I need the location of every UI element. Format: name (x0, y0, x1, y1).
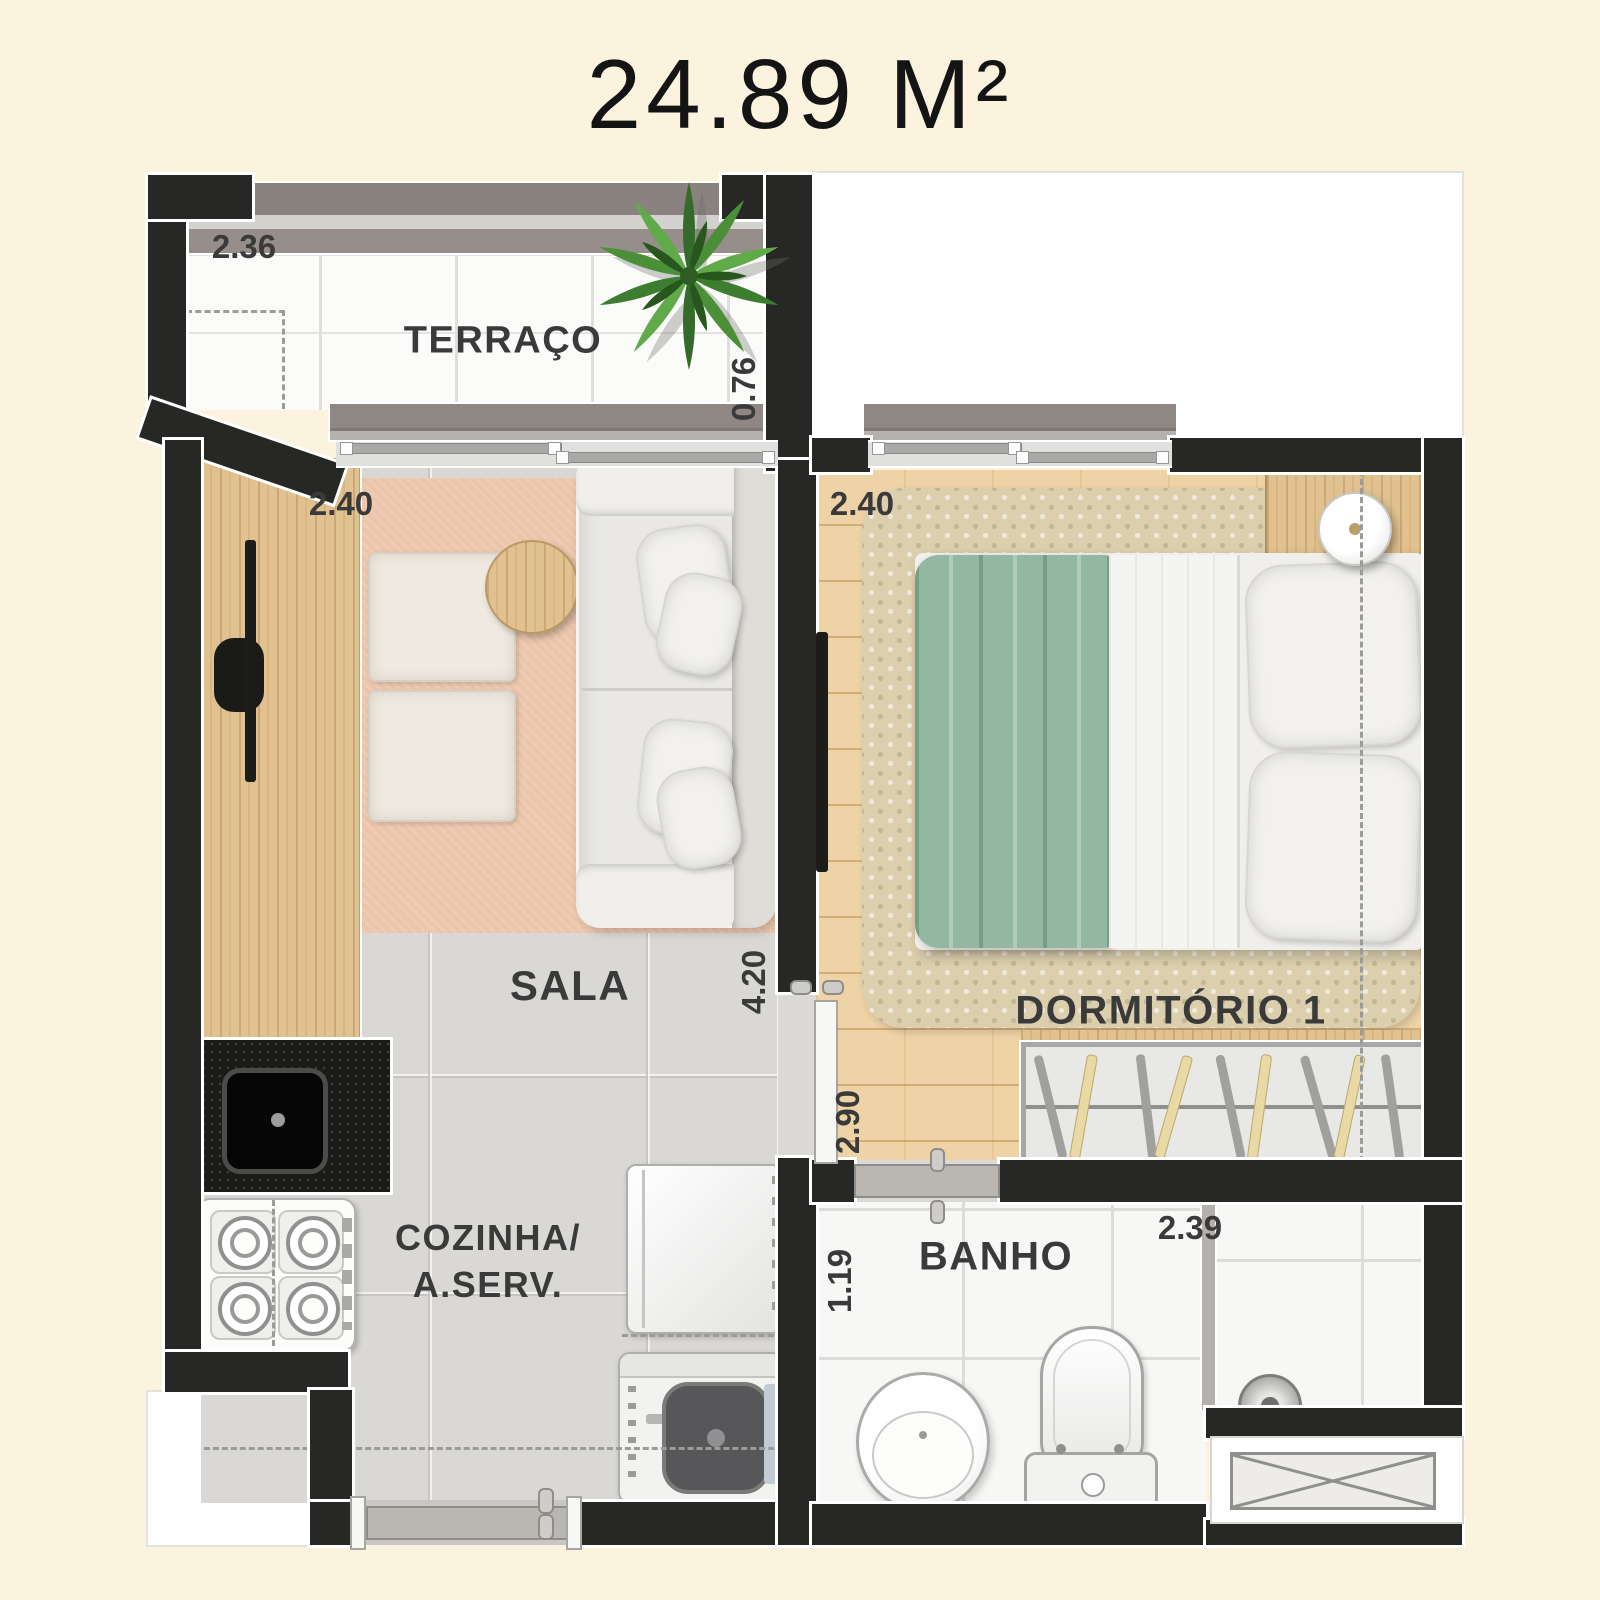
bed (915, 553, 1424, 950)
panel-handle (1156, 451, 1169, 464)
bedroom-label: DORMITÓRIO 1 (1015, 989, 1326, 1034)
kitchen-label: COZINHA/ A.SERV. (395, 1215, 581, 1309)
bathroom-depth-dimension: 1.19 (821, 1249, 859, 1313)
stove-burner (286, 1216, 340, 1270)
washer-side-accent (764, 1384, 778, 1484)
door-handle-icon (538, 1488, 554, 1514)
ledge-hatch-box (1230, 1452, 1436, 1510)
bathroom-width-dimension: 2.39 (1158, 1209, 1222, 1247)
washing-machine (618, 1352, 786, 1504)
tv-cabinet (200, 458, 360, 1044)
stove (196, 1198, 356, 1352)
sliding-panel (342, 443, 562, 454)
bedroom-projection-dashed (1360, 470, 1363, 1162)
balcony-door-sill (330, 404, 790, 440)
kitchen-label-line2: A.SERV. (395, 1262, 581, 1309)
bedroom-depth-dimension: 2.90 (829, 1090, 867, 1154)
table-lamp-icon (1318, 492, 1392, 566)
terrace-width-dimension: 2.36 (212, 228, 276, 266)
palm-plant-icon (583, 176, 795, 376)
stove-burner (218, 1216, 272, 1270)
bedroom-door-threshold (778, 992, 816, 1162)
bed-pillow (1244, 560, 1422, 750)
wall-bathroom-bottom (812, 1504, 1206, 1545)
floor-cushion-2 (368, 690, 516, 822)
floor-plan: 24.89 M² 2.36 TERRAÇO 0.76 (0, 0, 1600, 1600)
bed-pillow (1244, 750, 1422, 944)
washer-drum (662, 1382, 770, 1494)
toilet-hinge-icon (1114, 1444, 1124, 1454)
kitchen-faucet-icon (271, 1113, 285, 1127)
panel-handle (762, 451, 775, 464)
wardrobe (1021, 1042, 1438, 1172)
sofa-seat-divider (582, 688, 732, 691)
wall-bedroom-top-right (1170, 438, 1462, 472)
wall-shower-band (1206, 1408, 1462, 1438)
bathroom-sink (856, 1372, 990, 1512)
sink-bowl (872, 1411, 974, 1499)
wall-bedroom-bottom-right (1000, 1160, 1462, 1202)
door-handle-icon (930, 1200, 945, 1224)
balcony-sliding-door (336, 440, 778, 468)
living-width-dimension: 2.40 (309, 485, 373, 523)
entry-door-jamb (566, 1496, 582, 1550)
coffee-table (485, 540, 579, 634)
wall-terrace-top-left (148, 175, 252, 219)
living-tv-icon (245, 540, 256, 782)
wall-bedroom-top-left (812, 438, 870, 472)
washer-buttons (628, 1386, 636, 1486)
bathroom-door (854, 1164, 1000, 1198)
bedroom-window-sill (864, 404, 1176, 440)
stove-controls (342, 1218, 352, 1330)
sofa (576, 452, 776, 928)
panel-handle (556, 451, 569, 464)
stove-center-dashed (272, 1200, 275, 1346)
sofa-armrest-bottom (576, 864, 734, 928)
door-handle-icon (822, 980, 844, 995)
kitchen-sink (222, 1068, 328, 1174)
window-panel (1016, 452, 1168, 463)
tv-mount-bracket (214, 638, 264, 712)
bed-blanket (915, 555, 1111, 948)
stove-burner (286, 1282, 340, 1336)
fridge (626, 1164, 782, 1334)
toilet-hinge-icon (1056, 1444, 1066, 1454)
living-depth-dimension: 4.20 (735, 950, 773, 1014)
bathroom-label: BANHO (919, 1235, 1073, 1280)
shower-floor (1215, 1200, 1424, 1408)
wall-divider-top (778, 460, 816, 992)
terrace-projection-dashed (186, 310, 285, 409)
kitchen-label-line1: COZINHA/ (395, 1215, 581, 1262)
wall-bedroom-bottom-left (812, 1160, 854, 1202)
washer-panel (620, 1354, 784, 1378)
sofa-backrest (732, 452, 776, 928)
wall-divider-bottom (778, 1158, 816, 1545)
panel-handle (1016, 451, 1029, 464)
panel-handle (872, 442, 885, 455)
sliding-panel (556, 452, 774, 463)
kitchen-counter (200, 1040, 390, 1192)
fridge-door-line (642, 1170, 645, 1328)
kitchen-projection-dashed (204, 1447, 810, 1450)
wall-left (165, 440, 201, 1355)
wall-step-horizontal (165, 1352, 348, 1392)
panel-handle (340, 442, 353, 455)
living-room-label: SALA (510, 962, 630, 1010)
bedroom-width-dimension: 2.40 (830, 485, 894, 523)
door-handle-icon (930, 1148, 945, 1172)
door-handle-icon (790, 980, 812, 995)
bedroom-window (868, 440, 1172, 468)
terrace-label: TERRAÇO (404, 320, 602, 363)
wall-right (1424, 438, 1462, 1414)
wall-ledge-bottom (1206, 1520, 1462, 1545)
stove-burner (218, 1282, 272, 1336)
door-handle-icon (538, 1514, 554, 1540)
void-top-right (814, 173, 1462, 438)
bedroom-tv-icon (816, 632, 828, 872)
bed-sheet (1109, 555, 1240, 948)
area-title: 24.89 M² (587, 38, 1014, 151)
window-panel (874, 443, 1022, 454)
entry-door-jamb (350, 1496, 366, 1550)
